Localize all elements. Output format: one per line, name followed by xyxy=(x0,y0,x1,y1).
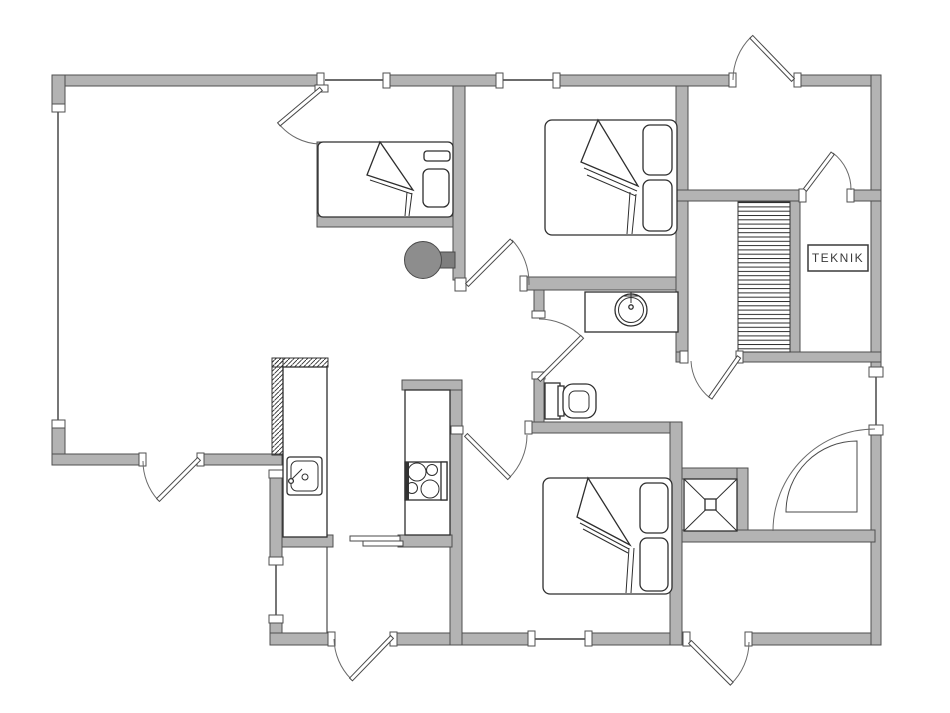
double-bed-2 xyxy=(543,478,672,594)
toilet xyxy=(545,383,596,419)
single-bed xyxy=(318,142,453,217)
washbasin xyxy=(585,292,678,332)
teknik-label-text: TEKNIK xyxy=(812,251,864,265)
corner-shower xyxy=(684,479,737,531)
stairs xyxy=(738,202,790,352)
floor-plan: TEKNIK xyxy=(0,0,950,713)
teknik-room-label: TEKNIK xyxy=(808,245,868,271)
kitchen-sink-counter xyxy=(283,367,327,537)
double-bed-1 xyxy=(545,120,677,235)
cooktop-counter xyxy=(405,390,450,535)
floor-plan-page: TEKNIK xyxy=(0,0,950,713)
